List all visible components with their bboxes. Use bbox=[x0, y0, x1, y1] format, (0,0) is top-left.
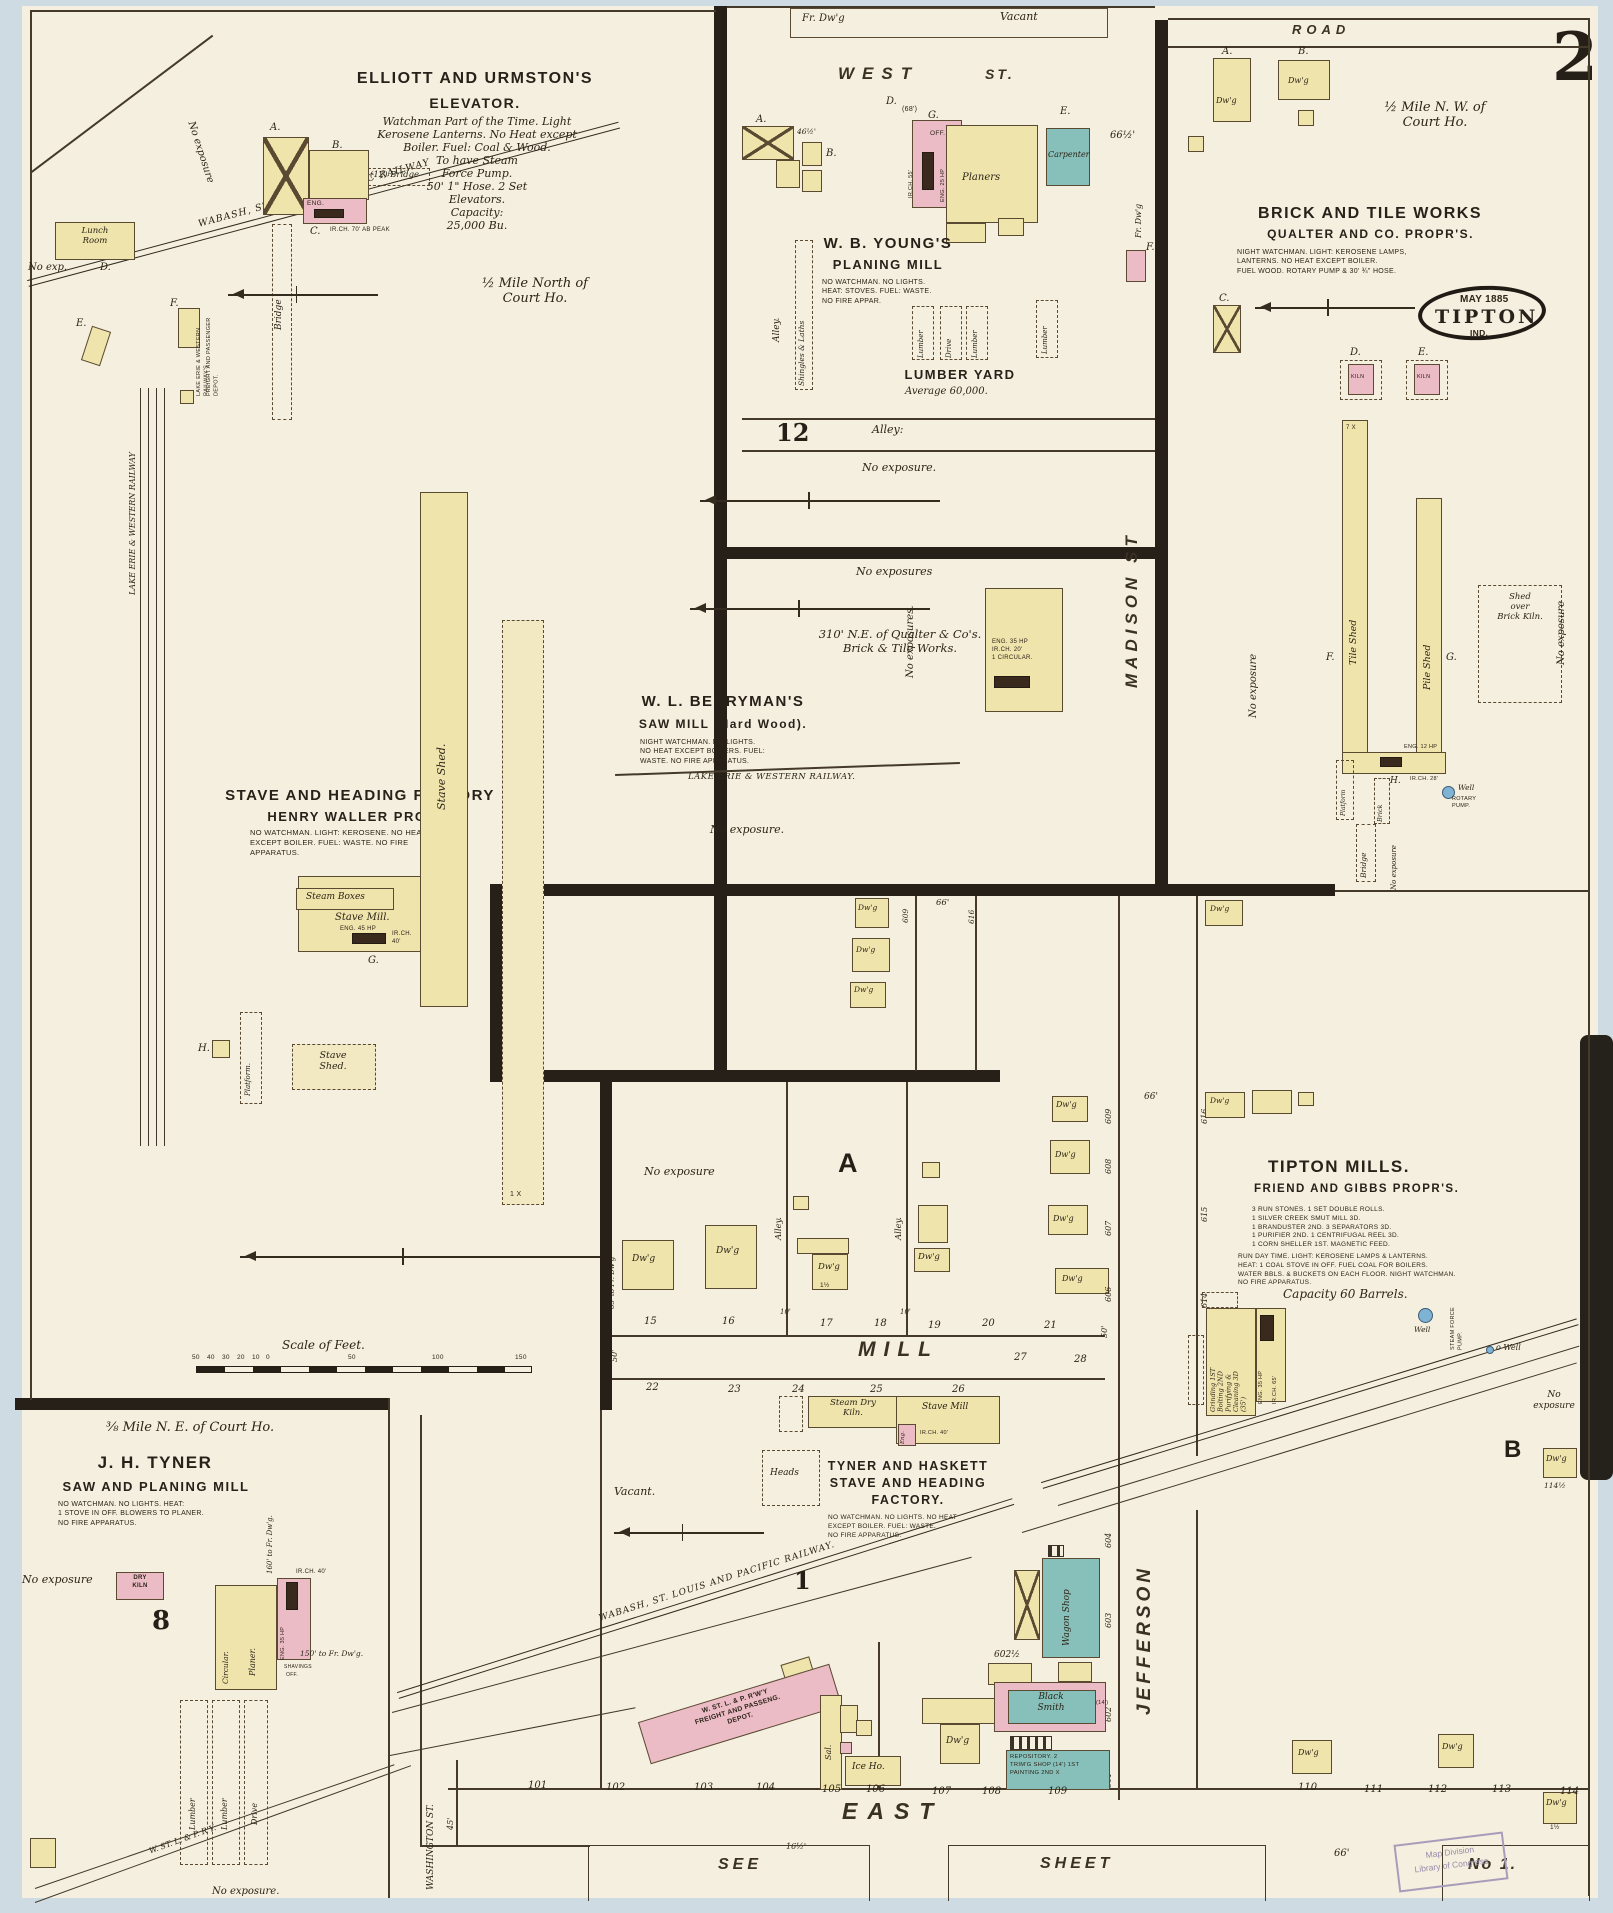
well-icon bbox=[1418, 1308, 1433, 1323]
story-mark: 7 X bbox=[1346, 424, 1356, 432]
scale-tick: 10 bbox=[252, 1354, 260, 1363]
pile-shed-label: Pile Shed bbox=[1422, 580, 1433, 690]
dwelling-label: Dw'g bbox=[1055, 1150, 1076, 1159]
dwelling-label: Dw'g bbox=[946, 1736, 969, 1747]
building-letter: A. bbox=[756, 114, 766, 126]
dwelling bbox=[1213, 58, 1251, 122]
scale-label: Scale of Feet. bbox=[282, 1338, 365, 1352]
building-letter: H. bbox=[198, 1043, 210, 1055]
engine-label: ENG. 12 HP bbox=[1404, 744, 1437, 751]
lumber-label: Lumber bbox=[917, 310, 925, 358]
scale-tick: 100 bbox=[432, 1354, 444, 1363]
stave-shed-label: Stave Shed. bbox=[300, 1050, 366, 1072]
building-letter: E. bbox=[1418, 347, 1428, 359]
no-exposure-label: No exposure bbox=[1556, 525, 1568, 665]
no-exposures-label: No exposures. bbox=[905, 578, 917, 678]
building-letter: B. bbox=[826, 148, 837, 160]
building-letter: D. bbox=[886, 96, 897, 108]
inset-border bbox=[1168, 18, 1590, 20]
lot-number: 110 bbox=[1298, 1782, 1317, 1794]
outbuilding bbox=[1298, 1092, 1314, 1106]
no-exposure-label: No exposure bbox=[1248, 563, 1260, 718]
jefferson-line bbox=[1118, 896, 1120, 1800]
building-e bbox=[81, 326, 111, 366]
shed bbox=[1010, 1736, 1052, 1750]
small-building bbox=[1058, 1662, 1092, 1682]
engine-label: ENG. 35 HP bbox=[1258, 1348, 1265, 1404]
section-border bbox=[490, 1070, 1000, 1082]
building-letter: H. bbox=[1390, 776, 1401, 787]
dwelling-label: Dw'g bbox=[632, 1254, 655, 1265]
tyner-notes: NO WATCHMAN. NO LIGHTS. HEAT: 1 STOVE IN… bbox=[58, 1500, 204, 1528]
rotary-pump-label: ROTARY PUMP. bbox=[1452, 796, 1476, 811]
dwelling bbox=[1252, 1090, 1292, 1114]
railway-siding bbox=[1022, 1362, 1577, 1533]
outbuilding bbox=[1298, 110, 1314, 126]
mill-porch bbox=[1202, 1292, 1238, 1308]
no-exposure-label: No exposure. bbox=[862, 462, 936, 475]
washington-line bbox=[420, 1415, 422, 1845]
lot-number: 112 bbox=[1428, 1784, 1447, 1796]
office-label: OFF. bbox=[930, 130, 945, 139]
alley-label: Alley. bbox=[894, 1182, 904, 1240]
dwelling-label: Dw'g bbox=[1546, 1798, 1567, 1807]
railway-siding bbox=[390, 1707, 636, 1756]
dwelling-label: Dw'g bbox=[1216, 96, 1237, 105]
block-number: 1 bbox=[794, 1566, 811, 1595]
machinery-notes: ENG. 35 HP IR.CH. 20' 1 CIRCULAR. bbox=[992, 638, 1033, 662]
boiler bbox=[994, 676, 1030, 688]
bridge-label: Bridge bbox=[274, 250, 285, 330]
railway-siding bbox=[392, 1557, 972, 1713]
see-sheet-label: SEE bbox=[718, 1856, 762, 1874]
stave-mill-label: Stave Mill. bbox=[335, 912, 390, 924]
carpenter-label: Carpenter bbox=[1048, 150, 1090, 159]
block-number: 8 bbox=[152, 1606, 170, 1636]
iron-chimney-note: IR.CH. 70' AB PEAK bbox=[330, 226, 390, 234]
street-width: 50' bbox=[1100, 1308, 1109, 1338]
city-name: TIPTON bbox=[1435, 305, 1538, 331]
street-width: 66' bbox=[936, 898, 949, 908]
no-exposure-label: No exp. bbox=[28, 262, 67, 274]
lot-width: 10' bbox=[780, 1308, 791, 1316]
brickworks-notes: NIGHT WATCHMAN. LIGHT: KEROSENE LAMPS, L… bbox=[1237, 248, 1407, 276]
lot-number: 23 bbox=[728, 1384, 741, 1396]
stave-mill-label: Stave Mill bbox=[922, 1402, 968, 1413]
small-building bbox=[840, 1742, 852, 1754]
lot-number: 27 bbox=[1014, 1352, 1027, 1364]
dwelling-label: Dw'g bbox=[1210, 1097, 1229, 1106]
mill-floors-label: Grinding 1ST Bolting 2ND Purifying & Cle… bbox=[1210, 1314, 1248, 1412]
dwelling-label: Dw'g bbox=[1298, 1748, 1319, 1757]
boiler bbox=[1260, 1315, 1274, 1341]
iron-chimney-note: IR.CH. 65' bbox=[1272, 1348, 1279, 1404]
iron-chimney-note: IR.CH. 40' bbox=[920, 1430, 948, 1437]
outbuilding bbox=[1188, 136, 1204, 152]
see-sheet-box bbox=[948, 1845, 1266, 1901]
railway-label: LAKE ERIE & WESTERN RAILWAY. bbox=[688, 772, 855, 782]
freight-depot-building: W. ST. L. & P. R'W'Y FREIGHT AND PASSENG… bbox=[638, 1664, 842, 1765]
jefferson-line bbox=[1196, 1510, 1198, 1790]
small-building bbox=[856, 1720, 872, 1736]
distance-note: 310' N.E. of Qualter & Co's. Brick & Til… bbox=[810, 628, 990, 655]
iron-chimney-note: IR.CH. 28' bbox=[1410, 776, 1438, 783]
dry-kiln-label: DRY KILN bbox=[120, 1574, 160, 1590]
dwelling-label: Dw'g bbox=[1053, 1214, 1074, 1223]
lot-number: 114 bbox=[1560, 1786, 1579, 1798]
kiln-label: KILN bbox=[1351, 374, 1364, 381]
block-line bbox=[600, 1410, 602, 1788]
section-border bbox=[15, 1398, 390, 1410]
lumber-label: Lumber bbox=[220, 1740, 229, 1830]
lot-number: 106 bbox=[866, 1784, 885, 1796]
section-border bbox=[1155, 20, 1168, 893]
lot-number: 609 bbox=[1104, 1098, 1113, 1124]
north-arrow bbox=[228, 294, 378, 296]
width-note: (14') bbox=[1096, 1700, 1108, 1707]
brick-kiln-shed-label: Shed over Brick Kiln. bbox=[1484, 592, 1556, 622]
property-line bbox=[30, 35, 213, 174]
tyner-haskett-notes: NO WATCHMAN. NO LIGHTS. NO HEAT EXCEPT B… bbox=[828, 1514, 957, 1540]
no-exposures-label: No exposures bbox=[856, 566, 932, 579]
building-letter: C. bbox=[310, 226, 320, 238]
young-title: W. B. YOUNG'S bbox=[808, 234, 968, 254]
shed-strip bbox=[502, 620, 544, 1205]
tyner-haskett-title: TYNER AND HASKETT STAVE AND HEADING FACT… bbox=[818, 1458, 998, 1509]
lumber-yard-avg: Average 60,000. bbox=[905, 386, 988, 398]
lot-number: 111 bbox=[1364, 1784, 1383, 1796]
lot-number: 606 bbox=[1104, 1276, 1113, 1302]
east-st-line bbox=[420, 1845, 590, 1847]
dwelling-label: Dw'g bbox=[856, 946, 875, 955]
setback-note: 65' to Fr. Dw'g bbox=[608, 1224, 616, 1309]
small-building bbox=[180, 390, 194, 404]
dwelling bbox=[622, 1240, 674, 1290]
frame-dwelling-note: Fr. Dw'g bbox=[1134, 182, 1143, 238]
street-width: 45' bbox=[446, 1798, 455, 1830]
scan-margin-right bbox=[1598, 0, 1613, 1913]
lot-number: 603 bbox=[1104, 1600, 1113, 1628]
lot-number: 103 bbox=[694, 1782, 713, 1794]
young-title2: PLANING MILL bbox=[818, 256, 958, 274]
no-exposure-label: No exposure. bbox=[212, 1886, 279, 1898]
street-name-washington: WASHINGTON ST. bbox=[426, 1772, 437, 1890]
saloon-label: Sal. bbox=[824, 1700, 833, 1760]
tyner-title: J. H. TYNER bbox=[70, 1452, 240, 1475]
lot-number: 25 bbox=[870, 1384, 883, 1396]
lot-number: 17 bbox=[820, 1318, 833, 1330]
street-line bbox=[915, 896, 917, 1071]
tipton-mills-title: TIPTON MILLS. bbox=[1268, 1156, 1410, 1179]
lot-number: 19 bbox=[928, 1320, 941, 1332]
scale-bar bbox=[196, 1366, 532, 1373]
shed bbox=[1048, 1545, 1064, 1557]
lot-width: 46½' bbox=[797, 128, 816, 137]
mill-st-line bbox=[612, 1378, 1105, 1380]
street-name-madison: MADISON ST bbox=[1122, 258, 1142, 688]
boiler bbox=[286, 1582, 298, 1610]
building-letter: C. bbox=[1219, 293, 1229, 305]
shed bbox=[1014, 1570, 1040, 1640]
torn-edge bbox=[1580, 1035, 1613, 1480]
lumber-yard-label: LUMBER YARD bbox=[880, 366, 1040, 384]
dwelling-label: Dw'g bbox=[1442, 1742, 1463, 1751]
see-sheet-label: SHEET bbox=[1040, 1855, 1113, 1873]
engine-label: ENG. 35 HP bbox=[280, 1614, 287, 1660]
small-building bbox=[802, 170, 822, 192]
ice-house-label: Ice Ho. bbox=[852, 1762, 885, 1773]
setback-note: 150' to Fr. Dw'g. bbox=[300, 1650, 363, 1659]
lot-number: 104 bbox=[756, 1782, 775, 1794]
railway-siding bbox=[164, 388, 166, 1146]
berryman-title: W. L. BERRYMAN'S bbox=[618, 692, 828, 712]
distance-note: ⅜ Mile N. E. of Court Ho. bbox=[40, 1420, 340, 1435]
tipton-mills-title2: FRIEND AND GIBBS PROPR'S. bbox=[1254, 1182, 1459, 1198]
waller-notes: NO WATCHMAN. LIGHT: KEROSENE. NO HEAT EX… bbox=[250, 828, 426, 858]
lot-number: 608 bbox=[1104, 1148, 1113, 1174]
iron-chimney-note: IR.CH. 40' bbox=[392, 930, 422, 946]
scale-tick: 20 bbox=[237, 1354, 245, 1363]
alley-label: Alley. bbox=[774, 1182, 784, 1240]
sheet-number: 2 bbox=[1552, 18, 1598, 96]
scan-margin-left bbox=[0, 0, 22, 1913]
no-exposure-label: No exposure. bbox=[710, 824, 784, 837]
dwelling bbox=[918, 1205, 948, 1243]
dwelling bbox=[922, 1698, 1000, 1724]
lew-depot-label2: FREIGHT AND PASSENGER DEPOT. bbox=[206, 306, 221, 396]
dwelling-label: Dw'g bbox=[1546, 1454, 1567, 1463]
repository-label: REPOSITORY. 2 TRIM'G SHOP (14') 1ST PAIN… bbox=[1010, 1754, 1079, 1777]
freight-depot-label: W. ST. L. & P. R'W'Y FREIGHT AND PASSENG… bbox=[648, 1671, 828, 1750]
street-name-west-st: ST. bbox=[985, 66, 1015, 82]
dwelling-label: Dw'g bbox=[1062, 1274, 1083, 1283]
railway-siding bbox=[140, 388, 142, 1146]
scale-tick: 50 bbox=[348, 1354, 356, 1363]
inset-border bbox=[388, 1398, 390, 1898]
brickworks-title: BRICK AND TILE WORKS bbox=[1225, 203, 1515, 225]
brick-pile-label: Brick bbox=[1377, 782, 1385, 822]
no-exposure-label: No exposure bbox=[1390, 818, 1398, 890]
tile-shed-label: Tile Shed bbox=[1348, 555, 1359, 665]
building-letter: F. bbox=[1326, 652, 1335, 664]
street-name-jefferson: JEFFERSON bbox=[1134, 1505, 1156, 1715]
setback-note: 160' to Fr. Dw'g. bbox=[266, 1486, 274, 1574]
house-number: 602½ bbox=[994, 1650, 1020, 1661]
dwelling-label: Dw'g bbox=[818, 1262, 840, 1272]
scale-tick: 30 bbox=[222, 1354, 230, 1363]
steam-boxes-label: Steam Boxes bbox=[306, 892, 365, 903]
scale-tick: 40 bbox=[207, 1354, 215, 1363]
outbuilding bbox=[922, 1162, 940, 1178]
small-building bbox=[776, 160, 800, 188]
lot-number: 22 bbox=[646, 1382, 659, 1394]
boiler bbox=[922, 152, 934, 190]
section-border bbox=[490, 884, 502, 1082]
lot-number: 615 bbox=[1200, 1194, 1209, 1222]
boiler bbox=[352, 933, 386, 944]
dwelling bbox=[852, 938, 890, 972]
dwelling-label: Dw'g bbox=[858, 904, 877, 913]
circular-saw-label: Circular. bbox=[222, 1612, 231, 1684]
story-mark: 1 X bbox=[510, 1190, 521, 1199]
block-letter: B bbox=[1504, 1436, 1521, 1464]
no-exposure-label: No exposure bbox=[22, 1574, 93, 1587]
wagon-shop-label: Wagon Shop bbox=[1062, 1576, 1073, 1646]
building-letter: G. bbox=[1446, 652, 1457, 664]
lot-number: 20 bbox=[982, 1318, 995, 1330]
well-icon bbox=[1486, 1346, 1494, 1354]
north-arrow bbox=[690, 608, 930, 610]
lot-number: 616 bbox=[968, 898, 977, 924]
drive-label: Drive bbox=[945, 310, 953, 358]
lot-number: 102 bbox=[606, 1782, 625, 1794]
platform-label: Platform bbox=[1340, 764, 1347, 816]
lot-number: 609 bbox=[902, 897, 911, 923]
engine-label: ENG. 45 HP bbox=[340, 925, 376, 933]
half-mile-note: ½ Mile N. W. of Court Ho. bbox=[1345, 100, 1525, 131]
street-name-west: WEST bbox=[838, 64, 919, 84]
elevator-title: ELLIOTT AND URMSTON'S bbox=[345, 68, 605, 90]
dwelling bbox=[797, 1238, 849, 1254]
lot-number: 16 bbox=[722, 1316, 735, 1328]
iron-chimney-note: IR.CH. 55' bbox=[908, 146, 915, 198]
mill-st-line bbox=[612, 1335, 1105, 1337]
building-letter: B. bbox=[1298, 46, 1309, 58]
dwelling-label: Dw'g bbox=[716, 1246, 739, 1257]
house-number: 114½ bbox=[1544, 1482, 1566, 1491]
planers-label: Planers bbox=[962, 172, 1000, 184]
washington-line bbox=[456, 1760, 458, 1845]
shed bbox=[779, 1396, 803, 1432]
alley-label: Alley: bbox=[872, 424, 903, 437]
planer-label: Planer. bbox=[248, 1600, 257, 1676]
building-letter: A. bbox=[270, 122, 280, 134]
building-letter: B. bbox=[332, 140, 343, 152]
engine-label: ENG. bbox=[307, 200, 324, 209]
dwelling-label: Dw'g bbox=[918, 1252, 940, 1262]
sanborn-map-sheet: 2 WABASH, ST. LOUIS & PACIFIC RAILWAY LA… bbox=[0, 0, 1613, 1913]
building-letter: E. bbox=[1060, 106, 1070, 118]
alley-label: Alley. bbox=[772, 282, 783, 342]
building-letter: E. bbox=[76, 318, 86, 330]
vacant-label: Vacant bbox=[1000, 11, 1038, 24]
berryman-title2: SAW MILL (Hard Wood). bbox=[628, 716, 818, 732]
dwelling-label: Dw'g bbox=[1210, 905, 1229, 914]
small-building-h bbox=[212, 1040, 230, 1058]
brickworks-title2: QUALTER AND CO. PROPR'S. bbox=[1248, 226, 1493, 242]
street-width: 66' bbox=[1334, 1848, 1349, 1860]
lot-number: 113 bbox=[1492, 1784, 1511, 1796]
no-exposure-label: No exposure bbox=[1524, 1390, 1584, 1411]
street-width: 50' bbox=[610, 1332, 619, 1362]
story-mark: 1½ bbox=[820, 1282, 830, 1291]
inset-border bbox=[1588, 18, 1590, 1896]
lot-number: 105 bbox=[822, 1784, 841, 1796]
steam-pump-label: STEAM FORCE PUMP. bbox=[1450, 1292, 1465, 1350]
railway-siding bbox=[1058, 1346, 1579, 1506]
frame-dwelling-label: Fr. Dw'g bbox=[802, 13, 845, 25]
building-a bbox=[742, 126, 794, 160]
shavings-label: SHAVINGS bbox=[284, 1664, 312, 1671]
dwelling-label: Dw'g bbox=[1288, 76, 1309, 85]
boiler bbox=[1380, 757, 1402, 767]
steam-dry-kiln-label: Steam Dry Kiln. bbox=[812, 1398, 894, 1418]
building-letter: F. bbox=[1146, 242, 1155, 254]
platform-label: Platform. bbox=[244, 1022, 252, 1096]
lot-number: 18 bbox=[874, 1318, 887, 1330]
small-building bbox=[998, 218, 1024, 236]
railway-siding bbox=[148, 388, 150, 1146]
kiln-label: KILN bbox=[1417, 374, 1430, 381]
lot-number: 604 bbox=[1104, 1520, 1113, 1548]
lot-width: 10' bbox=[900, 1308, 911, 1316]
scale-tick: 0 bbox=[266, 1354, 270, 1363]
section-border bbox=[490, 884, 1335, 896]
lot-number: 607 bbox=[1104, 1210, 1113, 1236]
block-letter: A bbox=[838, 1148, 858, 1179]
lot-number: 107 bbox=[932, 1786, 951, 1798]
street-width: 66½' bbox=[1110, 130, 1135, 142]
drive-label: Drive bbox=[250, 1745, 259, 1825]
tyner-title2: SAW AND PLANING MILL bbox=[46, 1478, 266, 1496]
scale-tick: 150 bbox=[515, 1354, 527, 1363]
lot-number: 15 bbox=[644, 1316, 657, 1328]
bridge-label: Bridge bbox=[1360, 828, 1369, 878]
lot-number: 26 bbox=[952, 1384, 965, 1396]
building-letter: G. bbox=[368, 955, 379, 967]
engine-label: Eng. bbox=[900, 1426, 906, 1444]
building-letter: D. bbox=[1350, 347, 1361, 359]
street-name-mill: MILL bbox=[858, 1338, 939, 1362]
north-arrow bbox=[240, 1256, 600, 1258]
well-label: Well bbox=[1458, 784, 1474, 793]
well-label: o Well bbox=[1496, 1343, 1521, 1352]
small-building bbox=[802, 142, 822, 166]
lumber-label: Lumber bbox=[971, 310, 979, 358]
iron-chimney-note: IR.CH. 40' bbox=[296, 1568, 327, 1576]
section-border bbox=[714, 6, 727, 1078]
building-letter: D. bbox=[100, 262, 111, 274]
elevator-building-b bbox=[309, 150, 369, 200]
office-label: OFF. bbox=[286, 1672, 298, 1679]
no-exposure-label: No exposure bbox=[644, 1166, 715, 1179]
block-number: 12 bbox=[776, 418, 809, 447]
alley-line bbox=[742, 450, 1155, 452]
vacant-label: Vacant. bbox=[614, 1486, 655, 1499]
building-letter: F. bbox=[170, 298, 179, 310]
outbuilding bbox=[793, 1196, 809, 1210]
bridge-label: (12) Bridge bbox=[370, 170, 419, 180]
railway-label: LAKE ERIE & WESTERN RAILWAY bbox=[128, 415, 137, 595]
dwelling-label: Dw'g bbox=[854, 986, 873, 995]
dwelling-label: Dw'g bbox=[1056, 1100, 1077, 1109]
north-arrow bbox=[614, 1532, 764, 1534]
shingles-label: Shingles & Laths bbox=[798, 246, 807, 386]
young-notes: NO WATCHMAN. NO LIGHTS. HEAT: STOVES. FU… bbox=[822, 278, 932, 306]
lumber-label: Lumber bbox=[1041, 304, 1049, 354]
mills-machinery-notes: 3 RUN STONES. 1 SET DOUBLE ROLLS. 1 SILV… bbox=[1252, 1206, 1399, 1250]
alley-line bbox=[786, 1082, 788, 1335]
berryman-notes: NIGHT WATCHMAN. NO LIGHTS. NO HEAT EXCEP… bbox=[640, 738, 765, 766]
mill-annex bbox=[1188, 1335, 1204, 1405]
blacksmith-label: Black Smith bbox=[1016, 1692, 1086, 1713]
lumber-label: Lumber bbox=[188, 1740, 197, 1830]
lunch-room-label: Lunch Room bbox=[60, 226, 130, 246]
street-name-road: ROAD bbox=[1292, 22, 1350, 37]
building-letter: G. bbox=[928, 110, 939, 122]
section-border bbox=[727, 547, 1155, 559]
lot-number: 109 bbox=[1048, 1786, 1067, 1798]
